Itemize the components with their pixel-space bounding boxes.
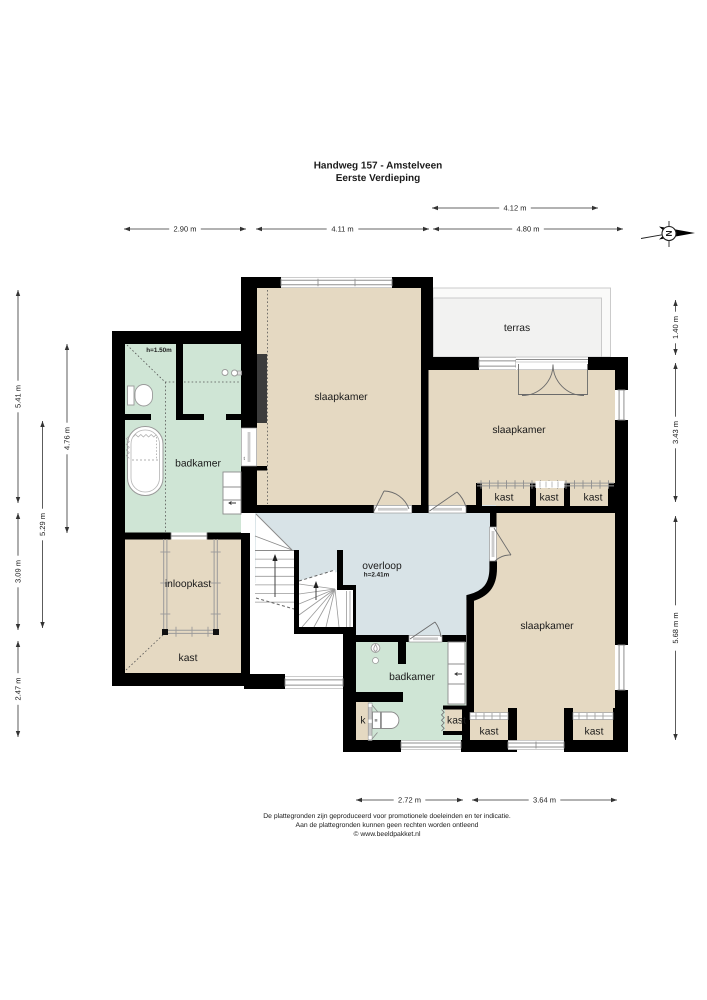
svg-text:slaapkamer: slaapkamer	[520, 621, 574, 632]
svg-text:N: N	[664, 230, 674, 236]
svg-text:h=2.41m: h=2.41m	[364, 572, 390, 579]
svg-text:kast: kast	[495, 493, 514, 504]
svg-text:3.43 m: 3.43 m	[671, 421, 680, 444]
svg-text:k: k	[360, 716, 366, 727]
svg-text:h=1.50m: h=1.50m	[146, 347, 172, 354]
svg-text:slaapkamer: slaapkamer	[492, 425, 546, 436]
svg-text:5.41 m: 5.41 m	[14, 385, 23, 408]
svg-text:inloopkast: inloopkast	[165, 579, 212, 590]
svg-text:kast: kast	[584, 493, 603, 504]
svg-text:kast: kast	[480, 727, 499, 738]
svg-text:kast: kast	[447, 716, 466, 727]
svg-text:overloop: overloop	[362, 561, 402, 572]
svg-text:2.72 m: 2.72 m	[398, 796, 421, 805]
svg-text:terras: terras	[504, 323, 530, 334]
svg-text:badkamer: badkamer	[175, 459, 221, 470]
svg-text:3.09 m: 3.09 m	[14, 560, 23, 583]
svg-text:badkamer: badkamer	[389, 672, 435, 683]
svg-text:4.11 m: 4.11 m	[331, 225, 353, 234]
svg-text:Handweg 157 - Amstelveen: Handweg 157 - Amstelveen	[314, 161, 443, 172]
svg-text:© www.beeldpakket.nl: © www.beeldpakket.nl	[354, 831, 421, 838]
svg-text:3.64 m: 3.64 m	[533, 796, 556, 805]
svg-text:5.29 m: 5.29 m	[38, 513, 47, 536]
svg-text:4.76 m: 4.76 m	[63, 427, 72, 450]
svg-text:2.90 m: 2.90 m	[174, 225, 197, 234]
svg-text:kast: kast	[540, 493, 559, 504]
svg-text:5.68 m m: 5.68 m m	[671, 612, 680, 643]
svg-text:De plattegronden zijn geproduc: De plattegronden zijn geproduceerd voor …	[263, 813, 511, 820]
svg-text:kast: kast	[179, 653, 198, 664]
svg-text:Eerste Verdieping: Eerste Verdieping	[336, 173, 420, 184]
svg-text:1.40 m: 1.40 m	[671, 316, 680, 339]
svg-text:Aan de plattegronden kunnen ge: Aan de plattegronden kunnen geen rechten…	[296, 822, 479, 829]
svg-text:2.47 m: 2.47 m	[14, 678, 23, 701]
svg-text:kast: kast	[585, 727, 604, 738]
svg-text:slaapkamer: slaapkamer	[314, 392, 368, 403]
svg-text:4.12 m: 4.12 m	[504, 204, 527, 213]
svg-text:4.80 m: 4.80 m	[517, 225, 540, 234]
